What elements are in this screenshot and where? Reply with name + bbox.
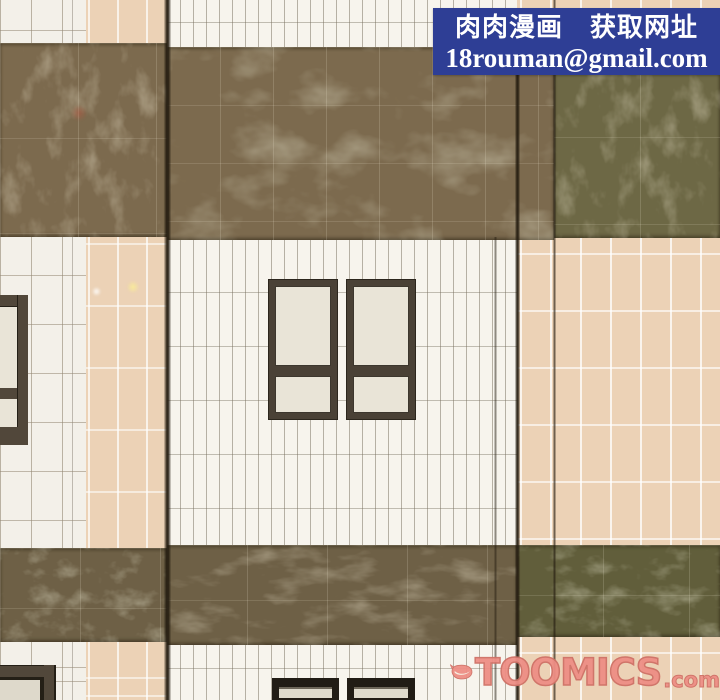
window-center-right-panel <box>346 279 416 420</box>
toomics-watermark: TOOMICS .com <box>450 645 720 699</box>
wall-corner-seam-far-right <box>553 0 556 700</box>
window-bottom-left-corner <box>0 665 56 700</box>
marble-texture <box>554 50 720 238</box>
window-center-left-panel <box>268 279 338 420</box>
marble-band-bottom-left <box>0 548 167 642</box>
marble-band-bottom-right <box>517 545 720 637</box>
toomics-brand-text: TOOMICS <box>475 651 661 694</box>
promo-banner-title: 肉肉漫画 获取网址 <box>433 13 720 43</box>
marble-band-top-middle <box>167 47 554 240</box>
window-pane-upper <box>353 286 409 366</box>
marble-texture <box>517 545 720 637</box>
promo-banner: 肉肉漫画 获取网址 18rouman@gmail.com <box>433 8 720 75</box>
window-left-partial <box>0 295 27 445</box>
yellow-highlight-dot <box>127 281 139 293</box>
wall-corner-seam-right <box>515 58 520 700</box>
window-pane-upper <box>275 286 331 366</box>
marble-band-bottom-middle <box>167 545 517 645</box>
marble-band-top-left <box>0 43 167 237</box>
window-bottom-center-right-panel <box>347 678 415 700</box>
window-pane-lower <box>275 376 331 413</box>
toomics-swoosh-icon <box>450 649 473 695</box>
marble-texture <box>0 43 167 237</box>
marble-texture <box>0 548 167 642</box>
wall-corner-seam-left <box>164 0 171 700</box>
window-frame-crossbar <box>353 366 409 376</box>
window-frame-crossbar <box>275 366 331 376</box>
comic-panel: 肉肉漫画 获取网址 18rouman@gmail.com TOOMICS .co… <box>0 0 720 700</box>
window-pane-lower <box>353 376 409 413</box>
window-bottom-center-left-panel <box>272 678 339 700</box>
wall-corner-seam-inner <box>494 237 497 700</box>
promo-banner-email: 18rouman@gmail.com <box>433 43 720 73</box>
white-highlight-dot <box>92 287 101 296</box>
toomics-suffix-text: .com <box>663 668 720 692</box>
marble-texture <box>167 545 517 645</box>
red-smudge <box>70 105 88 121</box>
marble-texture <box>167 47 554 240</box>
marble-band-top-right <box>554 50 720 238</box>
